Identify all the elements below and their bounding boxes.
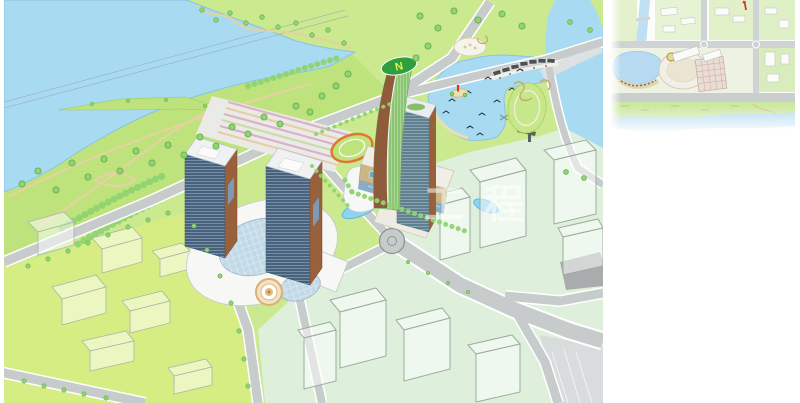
- inset-tower-footprint: [695, 56, 727, 91]
- roundabout: [380, 229, 405, 254]
- inset-site: [611, 46, 753, 93]
- location-inset-map: [611, 0, 795, 133]
- plaza-circle: [454, 38, 486, 56]
- masterplan-page: N: [0, 0, 800, 403]
- fountain-plaza: [256, 279, 282, 305]
- office-tower-east: [266, 148, 322, 285]
- office-tower-west: [185, 137, 237, 258]
